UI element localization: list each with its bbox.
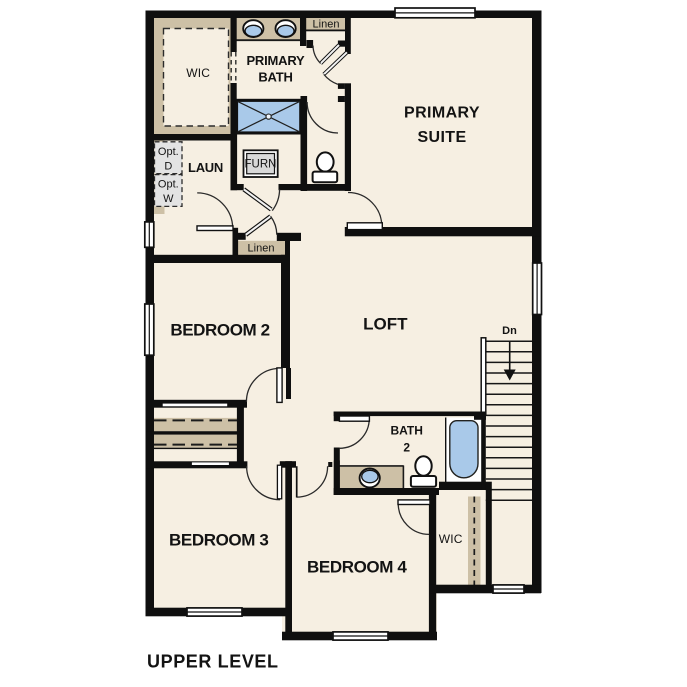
svg-text:Dn: Dn	[502, 325, 517, 337]
svg-text:2: 2	[403, 440, 410, 454]
svg-text:Linen: Linen	[248, 243, 275, 255]
svg-text:SUITE: SUITE	[417, 129, 466, 146]
svg-text:WIC: WIC	[439, 532, 463, 546]
svg-text:BATH: BATH	[258, 70, 292, 85]
svg-text:LOFT: LOFT	[363, 315, 408, 334]
svg-text:WIC: WIC	[186, 66, 210, 80]
svg-text:D: D	[164, 161, 172, 173]
svg-text:Opt.: Opt.	[158, 179, 179, 191]
svg-text:BEDROOM 2: BEDROOM 2	[170, 321, 269, 340]
svg-text:LAUN: LAUN	[188, 160, 223, 175]
svg-text:BEDROOM 4: BEDROOM 4	[307, 558, 407, 577]
svg-text:BEDROOM 3: BEDROOM 3	[169, 530, 268, 549]
svg-text:FURN: FURN	[245, 159, 277, 171]
svg-text:BATH: BATH	[390, 423, 422, 437]
svg-text:Linen: Linen	[313, 19, 340, 31]
svg-text:Opt.: Opt.	[158, 146, 179, 158]
svg-text:UPPER LEVEL: UPPER LEVEL	[147, 652, 279, 672]
svg-text:PRIMARY: PRIMARY	[246, 53, 305, 68]
svg-text:W: W	[163, 193, 174, 205]
svg-text:PRIMARY: PRIMARY	[404, 104, 480, 121]
